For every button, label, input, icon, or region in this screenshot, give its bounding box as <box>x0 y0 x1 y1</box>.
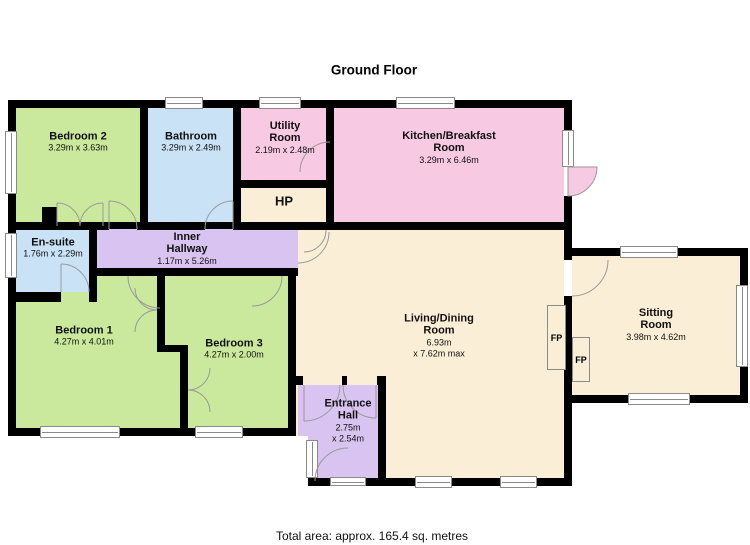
wall-ensuite-right <box>89 222 97 302</box>
wall-entrance-right <box>378 376 386 486</box>
window-sitting-bottom <box>628 393 690 405</box>
window-living-bottom-2 <box>500 476 537 488</box>
window-kitchen-top <box>396 97 455 109</box>
fireplace-sitting: FP <box>572 337 590 382</box>
label-ensuite: En-suite 1.76m x 2.29m <box>23 236 83 259</box>
total-area-text: Total area: approx. 165.4 sq. metres <box>276 529 468 543</box>
room-dims: 3.29m x 6.46m <box>402 155 496 166</box>
wall-bathroom-utility <box>233 108 241 222</box>
room-dims: 3.98m x 4.62m <box>626 332 686 343</box>
room-dims: 2.75m <box>324 422 371 433</box>
wall-ensuite-bottom-seg1 <box>8 292 61 302</box>
wall-closet-stub-bedroom2 <box>42 207 57 230</box>
label-bedroom1: Bedroom 1 4.27m x 4.01m <box>54 324 114 347</box>
page-title: Ground Floor <box>331 63 417 78</box>
wall-entrance-top-seg2 <box>342 376 347 385</box>
label-living-dining: Living/Dining Room 6.93m x 7.62m max <box>404 313 474 360</box>
room-name: Utility <box>255 120 315 132</box>
window-kitchen-right <box>562 130 574 167</box>
door-gap-kitchen-exterior <box>564 167 572 196</box>
room-dims: 1.76m x 2.29m <box>23 249 83 260</box>
wall-bedroom3-living <box>288 268 296 436</box>
room-name: Room <box>404 325 474 337</box>
room-name: Hallway <box>157 244 217 256</box>
label-entrance-hall: Entrance Hall 2.75m x 2.54m <box>324 398 371 445</box>
wall-utility-hp <box>233 180 334 188</box>
label-inner-hallway: Inner Hallway 1.17m x 5.26m <box>157 231 217 267</box>
label-hp: HP <box>275 194 293 209</box>
window-entrance-left <box>306 440 318 478</box>
room-name: Sitting <box>626 307 686 319</box>
room-name: Bathroom <box>161 130 221 142</box>
fireplace-living: FP <box>547 305 566 370</box>
wall-entrance-top-seg1 <box>290 376 303 385</box>
room-bathroom <box>148 108 233 222</box>
room-dims: x 7.62m max <box>404 348 474 359</box>
label-bathroom: Bathroom 3.29m x 2.49m <box>161 130 221 153</box>
room-dims: 3.29m x 3.63m <box>48 143 108 154</box>
label-bedroom2: Bedroom 2 3.29m x 3.63m <box>48 130 108 153</box>
window-bedroom3-bottom <box>195 426 243 438</box>
room-name: Room <box>402 143 496 155</box>
door-gap-living-sitting <box>564 260 572 296</box>
exterior-cutout <box>288 436 308 486</box>
window-ensuite-left <box>5 233 17 278</box>
room-name: Bedroom 3 <box>204 337 264 349</box>
wall-bedroom1-bedroom3-upper <box>157 276 165 350</box>
room-dims: 1.17m x 5.26m <box>157 256 217 267</box>
room-dims: 3.29m x 2.49m <box>161 143 221 154</box>
room-name: Hall <box>324 410 371 422</box>
room-dims: 2.19m x 2.48m <box>255 145 315 156</box>
room-name: Room <box>255 133 315 145</box>
door-arc-kitchen-exterior <box>568 167 597 196</box>
window-bedroom1-bottom <box>40 426 120 438</box>
room-dims: 4.27m x 4.01m <box>54 337 114 348</box>
room-dims: x 2.54m <box>324 433 371 444</box>
window-living-bottom-1 <box>415 476 452 488</box>
wall-east-lower <box>564 403 572 486</box>
window-bathroom-top <box>165 97 203 109</box>
room-name: Kitchen/Breakfast <box>402 130 496 142</box>
room-name: Room <box>626 320 686 332</box>
label-bedroom3: Bedroom 3 4.27m x 2.00m <box>204 337 264 360</box>
window-sitting-top <box>620 246 678 258</box>
wall-hallway-top-seg3 <box>233 222 304 230</box>
label-kitchen: Kitchen/Breakfast Room 3.29m x 6.46m <box>402 130 496 166</box>
wall-hallway-bottom-seg2 <box>160 268 252 276</box>
wall-bedroom2-bathroom <box>140 108 148 222</box>
label-utility: Utility Room 2.19m x 2.48m <box>255 120 315 156</box>
room-dims: 6.93m <box>404 337 474 348</box>
window-sitting-right <box>736 285 748 367</box>
wall-ensuite-bottom-seg2 <box>89 292 97 302</box>
wall-hallway-top-seg2 <box>137 222 205 230</box>
wall-utility-kitchen-upper <box>326 100 334 142</box>
room-name: Bedroom 1 <box>54 324 114 336</box>
front-door-leaf <box>330 477 366 486</box>
room-name: Entrance <box>324 398 371 410</box>
room-name: Inner <box>157 231 217 243</box>
label-sitting: Sitting Room 3.98m x 4.62m <box>626 307 686 343</box>
room-name: Living/Dining <box>404 313 474 325</box>
room-name: Bedroom 2 <box>48 130 108 142</box>
wall-utility-kitchen-lower <box>326 172 334 230</box>
window-utility-top <box>259 97 301 109</box>
floor-plan: Ground Floor Total area: approx. 165.4 s… <box>0 0 750 545</box>
room-name: En-suite <box>23 236 83 248</box>
room-bedroom2 <box>16 108 140 222</box>
room-dims: 4.27m x 2.00m <box>204 350 264 361</box>
wall-bedroom1-bedroom3-lower <box>180 345 188 428</box>
window-bedroom2-left <box>5 131 17 194</box>
